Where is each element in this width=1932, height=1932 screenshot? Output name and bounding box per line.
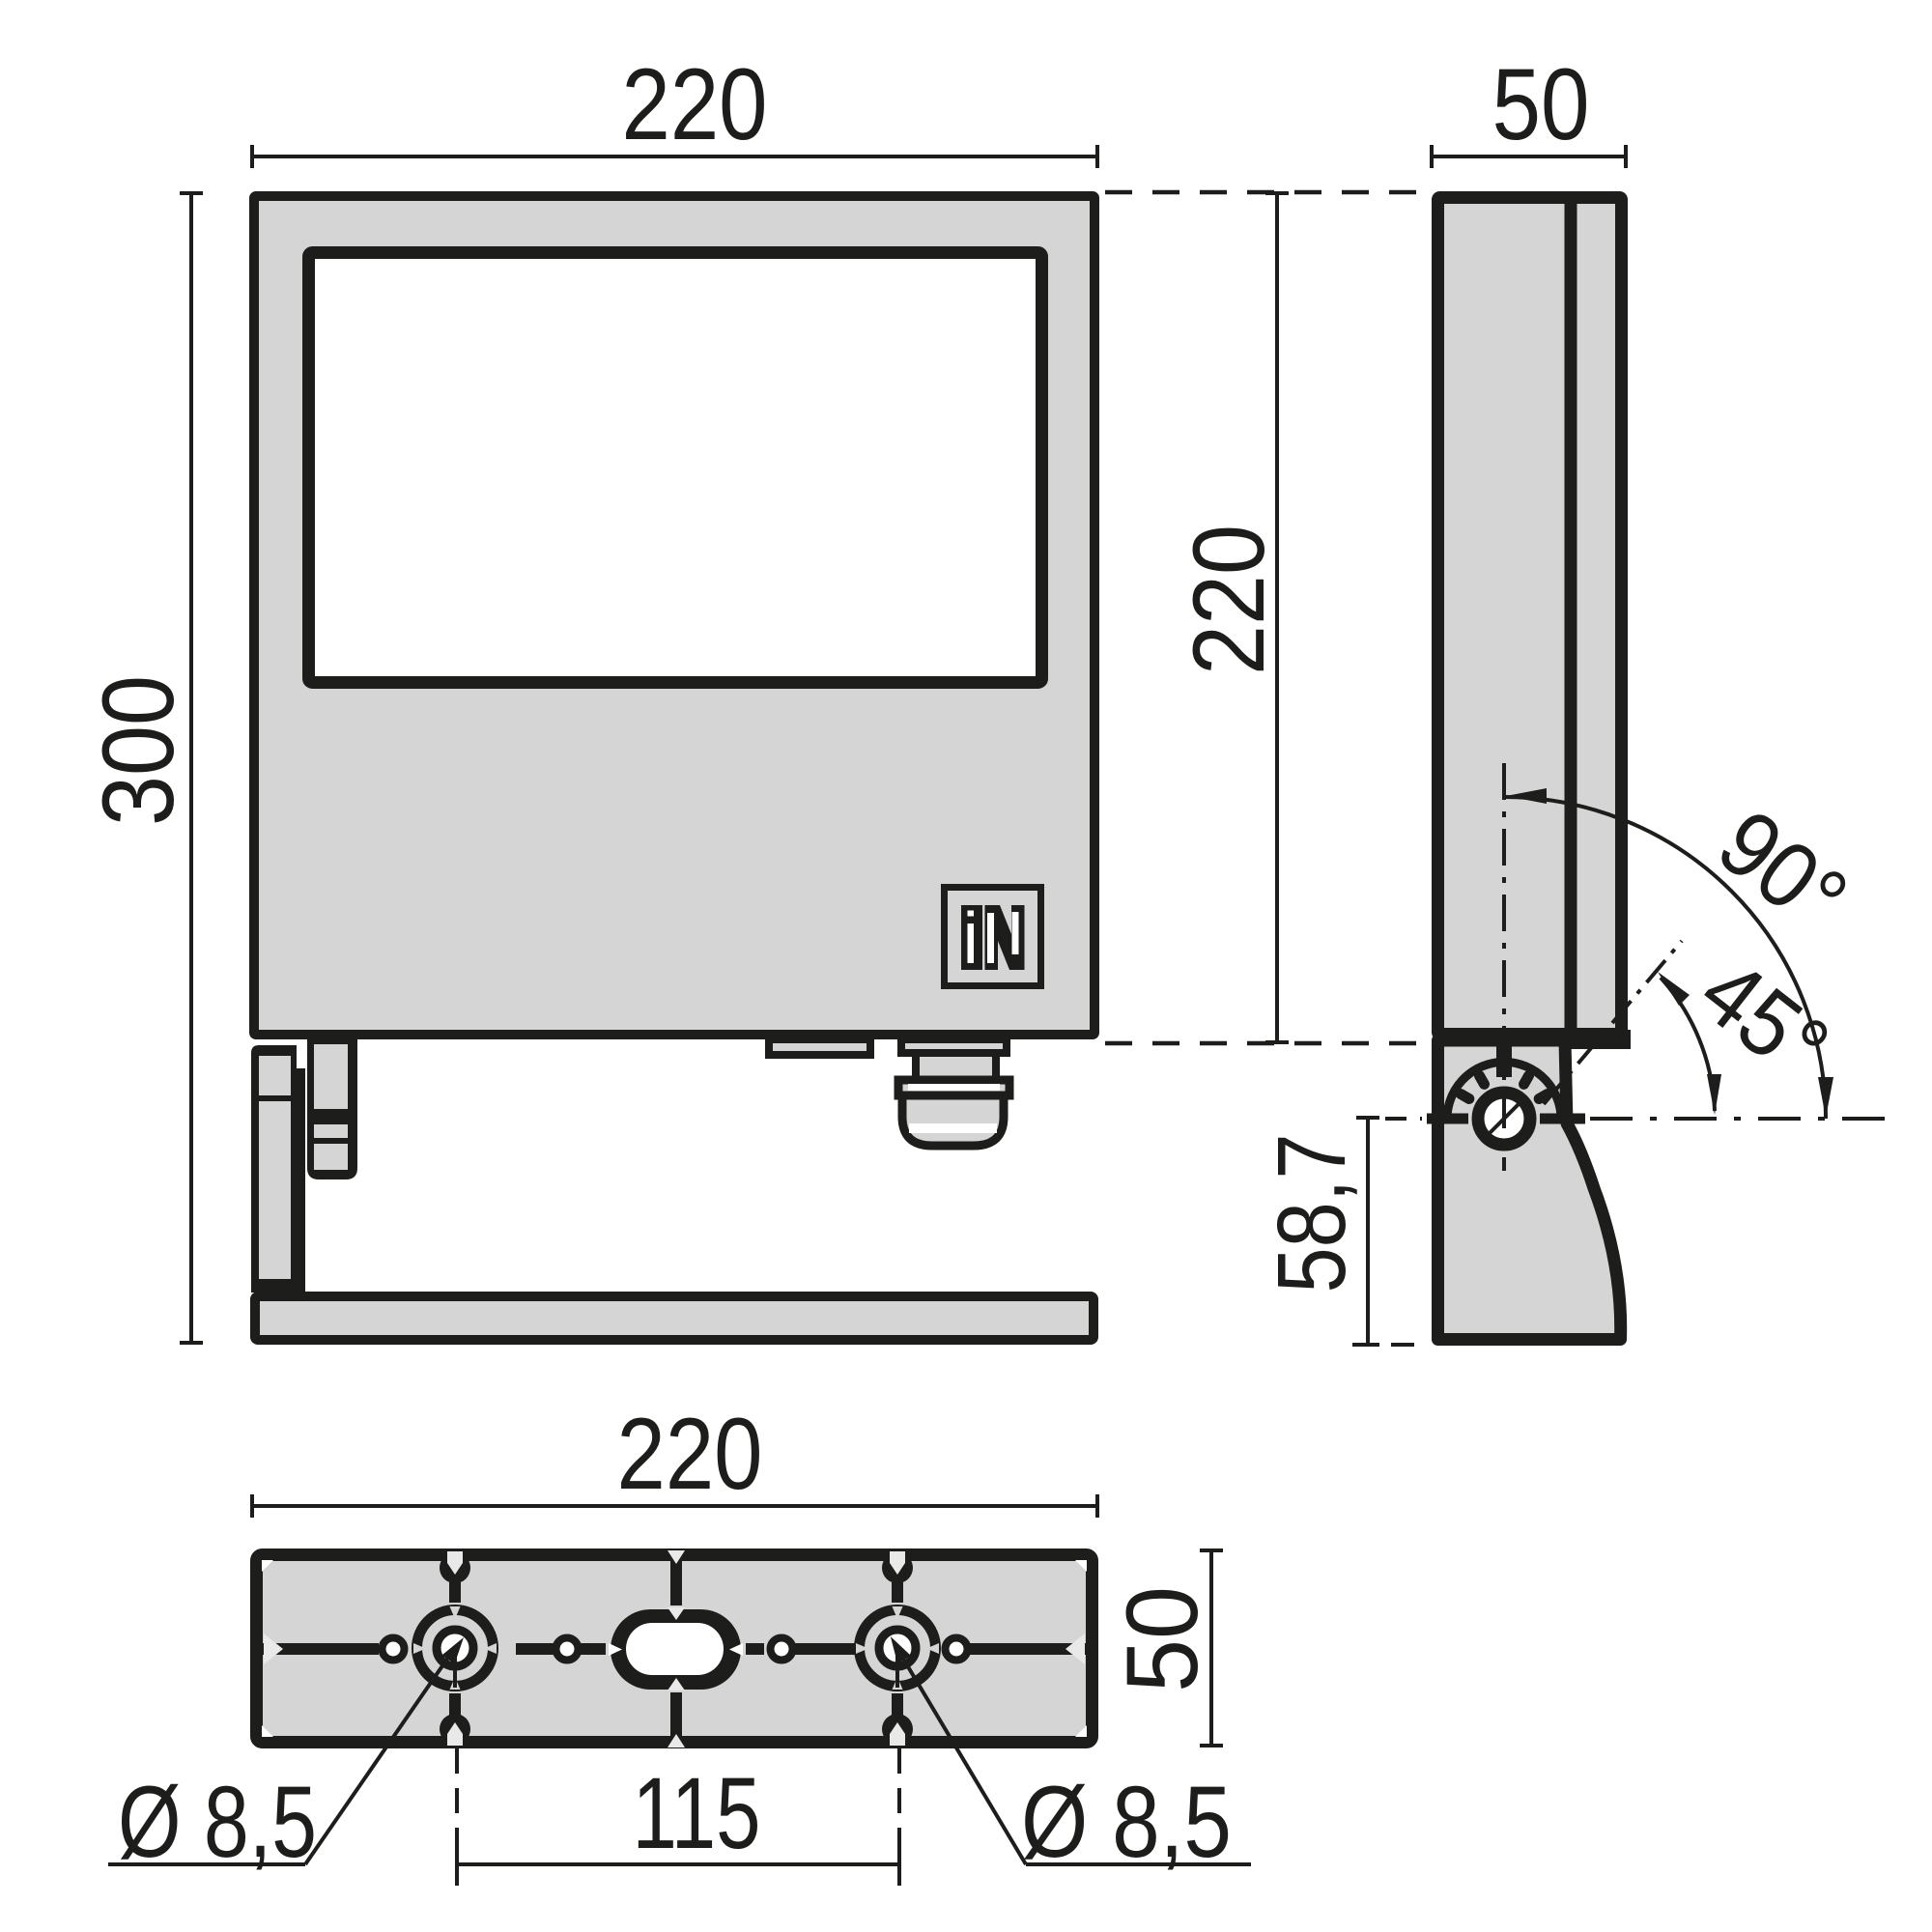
svg-text:50: 50 (1106, 1586, 1219, 1692)
svg-text:115: 115 (633, 1757, 761, 1870)
svg-text:220: 220 (617, 1398, 763, 1511)
svg-text:220: 220 (1173, 525, 1286, 675)
svg-text:220: 220 (622, 48, 768, 161)
svg-text:58,7: 58,7 (1258, 1134, 1366, 1293)
svg-text:300: 300 (82, 675, 195, 826)
svg-text:50: 50 (1492, 48, 1590, 161)
svg-text:Ø 8,5: Ø 8,5 (118, 1766, 317, 1879)
svg-text:Ø 8,5: Ø 8,5 (1021, 1766, 1232, 1879)
